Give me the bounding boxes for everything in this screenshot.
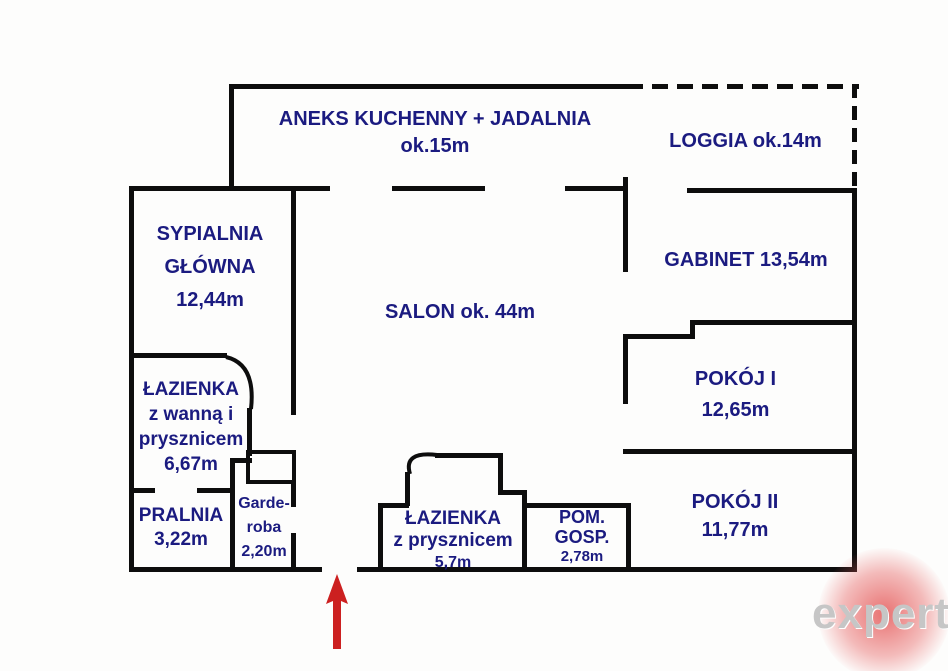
room-name: GOSP. [538, 527, 626, 547]
room-area: 2,20m [234, 540, 294, 564]
floor-plan: expert ANEKS KUCHENNY + JADALNIA ok.15m … [0, 0, 948, 671]
room-name: Garde- [234, 492, 294, 516]
room-name: SALON ok. 44m [350, 299, 570, 325]
room-label-laundry: PRALNIA 3,22m [131, 504, 231, 552]
room-area: 5,7m [383, 552, 523, 574]
room-label-salon: SALON ok. 44m [350, 299, 570, 325]
room-area: 3,22m [131, 528, 231, 552]
room-area: 6,67m [131, 452, 251, 477]
wardrobe-shaft-box [248, 452, 294, 482]
room-desc: z prysznicem [383, 530, 523, 552]
room-name: ŁAZIENKA [383, 508, 523, 530]
room-area: 2,78m [538, 547, 626, 567]
room-name: LOGGIA ok.14m [638, 128, 853, 154]
door-arc-bath2 [409, 454, 437, 474]
room-name: PRALNIA [131, 504, 231, 528]
room-name: roba [234, 516, 294, 540]
room-name: GABINET 13,54m [640, 247, 852, 273]
room-label-room1: POKÓJ I 12,65m [653, 364, 818, 426]
room-name: ŁAZIENKA [131, 377, 251, 402]
room-label-bedroom: SYPIALNIA GŁÓWNA 12,44m [134, 218, 286, 317]
room-name: POM. [538, 507, 626, 527]
room-label-loggia: LOGGIA ok.14m [638, 128, 853, 154]
room-area: ok.15m [250, 133, 620, 160]
entrance-arrow-icon [326, 574, 348, 649]
room-label-bath2: ŁAZIENKA z prysznicem 5,7m [383, 508, 523, 574]
room-area: 12,65m [653, 395, 818, 426]
room-desc: prysznicem [131, 427, 251, 452]
room-label-bath1: ŁAZIENKA z wanną i prysznicem 6,67m [131, 377, 251, 477]
room-area: 12,44m [134, 284, 286, 317]
room-label-office: GABINET 13,54m [640, 247, 852, 273]
room-name: GŁÓWNA [134, 251, 286, 284]
room-label-utility: POM. GOSP. 2,78m [538, 507, 626, 567]
room-area: 11,77m [650, 516, 820, 544]
room-desc: z wanną i [131, 402, 251, 427]
room-name: ANEKS KUCHENNY + JADALNIA [250, 106, 620, 133]
room-name: POKÓJ II [650, 488, 820, 516]
room-name: POKÓJ I [653, 364, 818, 395]
room-name: SYPIALNIA [134, 218, 286, 251]
room-label-kitchen: ANEKS KUCHENNY + JADALNIA ok.15m [250, 106, 620, 160]
room-label-wardrobe: Garde- roba 2,20m [234, 492, 294, 564]
watermark-text: expert [812, 589, 948, 639]
room-label-room2: POKÓJ II 11,77m [650, 488, 820, 544]
